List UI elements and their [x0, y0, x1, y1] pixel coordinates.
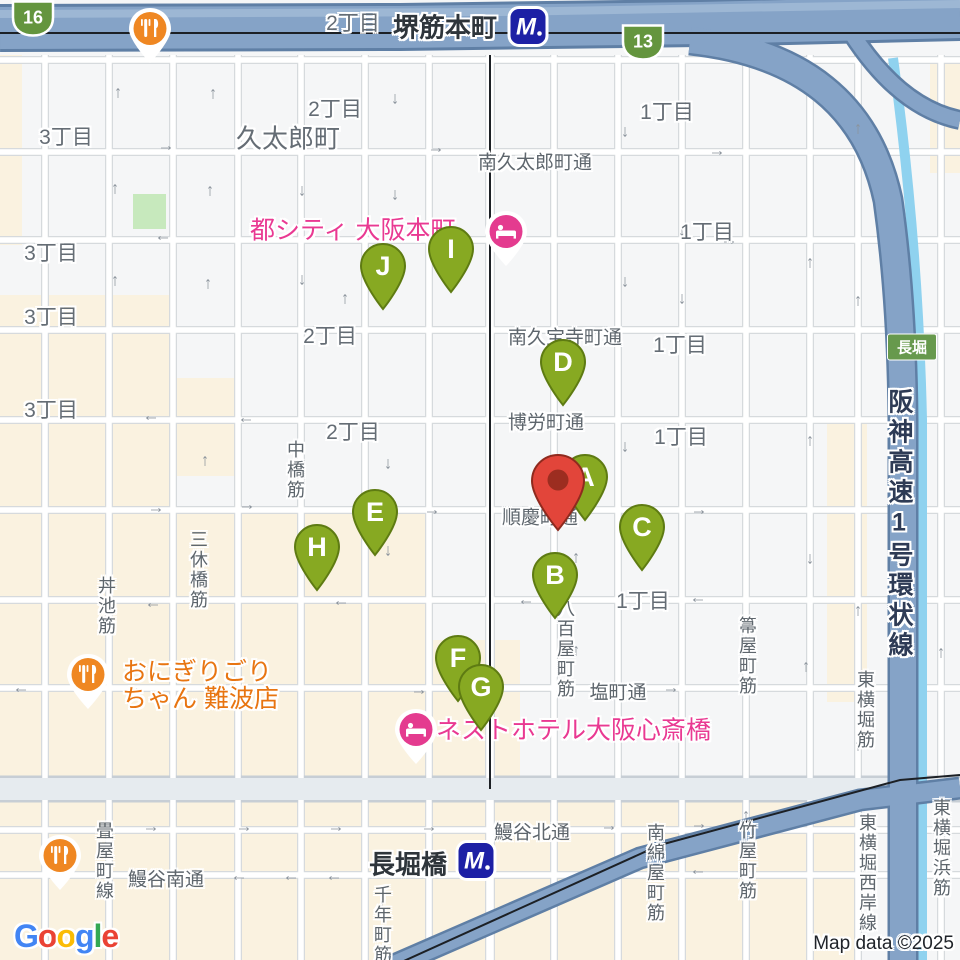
svg-text:J: J	[375, 251, 390, 281]
svg-text:C: C	[632, 512, 652, 542]
metro-icon[interactable]: M	[507, 6, 549, 53]
one-way-arrow: ↑	[664, 686, 681, 695]
one-way-arrow: ↑	[621, 275, 630, 292]
metro-icon[interactable]: M	[455, 840, 497, 887]
one-way-arrow: ↑	[230, 874, 247, 883]
metro-station-label[interactable]: 堺筋本町	[393, 8, 497, 45]
street-name-label: 千年町筋	[369, 885, 395, 960]
restaurant-pin[interactable]	[66, 653, 110, 711]
one-way-arrow: ↑	[937, 644, 946, 661]
metro-station-label[interactable]: 長堀橋	[369, 845, 447, 882]
one-way-arrow: ↑	[692, 508, 709, 517]
one-way-arrow: ↑	[806, 552, 815, 569]
one-way-arrow: ↑	[391, 188, 400, 205]
google-logo-letter: e	[101, 918, 118, 954]
one-way-arrow: ↑	[425, 508, 442, 517]
one-way-arrow: ↑	[710, 149, 727, 158]
one-way-arrow: ↑	[298, 184, 307, 201]
google-logo-letter: G	[14, 918, 38, 954]
one-way-arrow: ↑	[111, 180, 120, 197]
road-name-badge: 長堀	[887, 334, 937, 361]
one-way-arrow: ↑	[325, 874, 342, 883]
street-name-label: 東横堀西岸線	[854, 813, 880, 933]
district-label: 3丁目	[24, 301, 78, 331]
one-way-arrow: ↑	[114, 84, 123, 101]
map-pin-e[interactable]: E	[351, 488, 399, 558]
google-logo-letter: o	[56, 918, 75, 954]
one-way-arrow: ↑	[154, 234, 171, 243]
district-label: 久太郎町	[236, 119, 340, 156]
park-area	[133, 194, 166, 229]
one-way-arrow: ↑	[237, 416, 254, 425]
one-way-arrow: ↑	[854, 292, 863, 309]
one-way-arrow: ↑	[429, 146, 446, 155]
street-name-label: 竹屋町筋	[734, 821, 760, 901]
map-pin-h[interactable]: H	[293, 523, 341, 593]
district-label: 1丁目	[640, 96, 694, 126]
one-way-arrow: ↑	[204, 275, 213, 292]
svg-text:H: H	[307, 532, 327, 562]
one-way-arrow: ↑	[111, 272, 120, 289]
district-label: 1丁目	[653, 329, 707, 359]
street-name-label: 三休橋筋	[185, 530, 211, 610]
one-way-arrow: ↑	[689, 596, 706, 605]
svg-text:13: 13	[633, 32, 653, 52]
street-name-label: 東横堀浜筋	[928, 798, 954, 898]
street-name-label: 鰻谷南通	[128, 865, 204, 892]
one-way-arrow: ↑	[149, 506, 166, 515]
district-label: 3丁目	[24, 394, 78, 424]
one-way-arrow: ↑	[692, 822, 709, 831]
one-way-arrow: ↑	[144, 601, 161, 610]
one-way-arrow: ↑	[854, 120, 863, 137]
map-pin-g[interactable]: G	[457, 663, 505, 733]
district-label: 2丁目	[326, 7, 380, 37]
map-data-attribution: Map data ©2025	[813, 933, 954, 955]
one-way-arrow: ↑	[384, 457, 393, 474]
district-label: 1丁目	[680, 216, 734, 246]
street-name-label: 丼池筋	[93, 576, 119, 636]
map-pin-b[interactable]: B	[531, 551, 579, 621]
district-label: 2丁目	[326, 416, 380, 446]
google-logo-letter: o	[38, 918, 57, 954]
street-name-label: 箒屋町筋	[734, 616, 760, 696]
one-way-arrow: ↑	[806, 432, 815, 449]
district-label: 2丁目	[303, 320, 357, 350]
one-way-arrow: ↑	[144, 825, 161, 834]
one-way-arrow: ↑	[678, 292, 687, 309]
one-way-arrow: ↑	[391, 92, 400, 109]
svg-text:G: G	[470, 672, 491, 702]
hotel-label[interactable]: 都シティ 大阪本町	[250, 218, 455, 245]
restaurant-pin[interactable]	[128, 7, 172, 65]
one-way-arrow: ↑	[341, 290, 350, 307]
svg-text:M: M	[516, 14, 537, 41]
map-canvas[interactable]	[0, 0, 960, 960]
hotel-pin[interactable]	[484, 210, 528, 268]
one-way-arrow: ↑	[329, 825, 346, 834]
district-label: 3丁目	[24, 237, 78, 267]
district-label: 1丁目	[654, 421, 708, 451]
street-name-label: 博労町通	[508, 408, 584, 435]
one-way-arrow: ↑	[621, 440, 630, 457]
one-way-arrow: ↑	[332, 599, 349, 608]
one-way-arrow: ↑	[142, 414, 159, 423]
map-pin-j[interactable]: J	[359, 242, 407, 312]
svg-text:16: 16	[23, 8, 43, 28]
one-way-arrow: ↑	[412, 688, 429, 697]
one-way-arrow: ↑	[209, 85, 218, 102]
map-viewport[interactable]: ↑↑↑↑↑↑↑↑↑↑↑↑↑↑↑↑↑↑↑↑↑↑↑↑↑↑↑↑↑↑↑↑↑↑↑↑↑↑↑↑…	[0, 0, 960, 960]
map-pin-d[interactable]: D	[539, 338, 587, 408]
hotel-pin[interactable]	[394, 708, 438, 766]
district-label: 1丁目	[616, 585, 670, 615]
street-name-label: 南久太郎町通	[478, 148, 592, 175]
google-logo[interactable]: Google	[14, 918, 118, 955]
street-name-label: 塩町通	[589, 678, 646, 705]
svg-text:B: B	[545, 560, 565, 590]
one-way-arrow: ↑	[206, 182, 215, 199]
district-label: 3丁目	[39, 121, 93, 151]
one-way-arrow: ↑	[240, 503, 257, 512]
svg-text:D: D	[553, 347, 573, 377]
destination-pin[interactable]	[530, 453, 586, 533]
one-way-arrow: ↑	[201, 452, 210, 469]
route-shield: 16	[10, 0, 56, 43]
one-way-arrow: ↑	[621, 125, 630, 142]
one-way-arrow: ↑	[854, 602, 863, 619]
svg-text:E: E	[366, 497, 384, 527]
street-name-label: 東横堀筋	[852, 670, 878, 750]
map-pin-c[interactable]: C	[618, 503, 666, 573]
route-shield: 13	[620, 24, 666, 67]
one-way-arrow: ↑	[282, 874, 299, 883]
street-name-label: 中橋筋	[282, 440, 308, 500]
street-name-label: 鰻谷北通	[494, 818, 570, 845]
one-way-arrow: ↑	[159, 144, 176, 153]
one-way-arrow: ↑	[806, 254, 815, 271]
highway-name-label: 阪神高速1号環状線	[881, 389, 917, 662]
one-way-arrow: ↑	[298, 273, 307, 290]
one-way-arrow: ↑	[602, 824, 619, 833]
map-pin-i[interactable]: I	[427, 225, 475, 295]
svg-text:I: I	[447, 234, 455, 264]
svg-text:M: M	[464, 848, 485, 875]
street-name-label: 畳屋町線	[91, 821, 117, 901]
one-way-arrow: ↑	[237, 825, 254, 834]
one-way-arrow: ↑	[802, 658, 811, 675]
google-logo-letter: g	[75, 918, 94, 954]
restaurant-pin[interactable]	[38, 834, 82, 892]
one-way-arrow: ↑	[689, 868, 706, 877]
restaurant-label[interactable]: おにぎりごりちゃん 難波店	[122, 659, 279, 713]
street-name-label: 南綿屋町筋	[642, 823, 668, 923]
one-way-arrow: ↑	[12, 686, 29, 695]
one-way-arrow: ↑	[422, 825, 439, 834]
